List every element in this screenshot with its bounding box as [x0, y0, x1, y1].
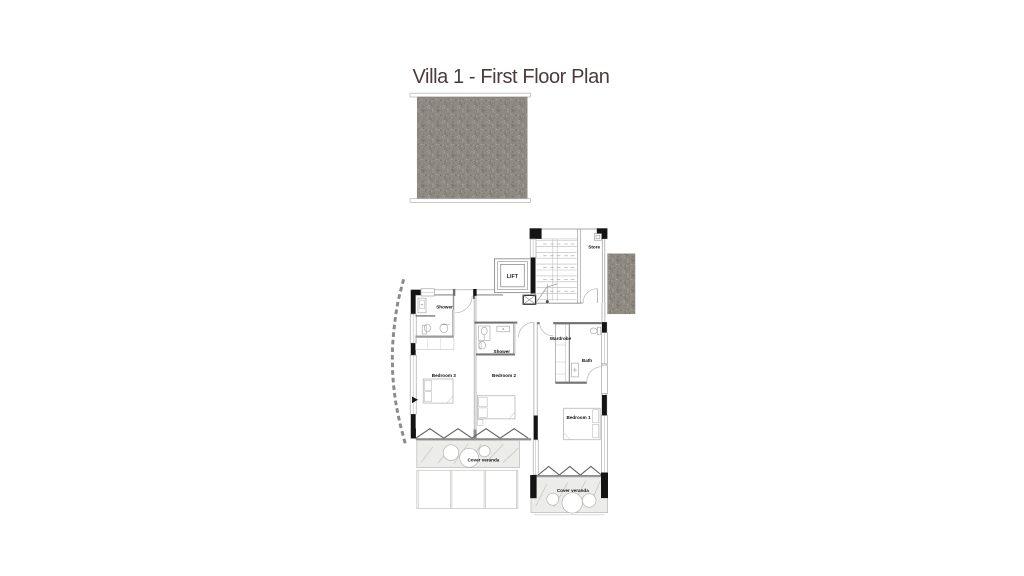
svg-text:Bath: Bath [582, 358, 592, 363]
svg-text:Store: Store [588, 245, 600, 250]
svg-text:Cover veranda: Cover veranda [557, 488, 589, 493]
svg-text:Bedroom 3: Bedroom 3 [432, 373, 456, 378]
svg-text:Shower: Shower [436, 305, 453, 310]
svg-text:Cover veranda: Cover veranda [467, 458, 499, 463]
svg-text:Villa 1 - First Floor Plan: Villa 1 - First Floor Plan [412, 66, 609, 88]
svg-text:LIFT: LIFT [507, 274, 519, 280]
svg-text:Shower: Shower [494, 349, 511, 354]
svg-text:Wardrobe: Wardrobe [550, 336, 572, 341]
svg-text:Bedroom 1: Bedroom 1 [567, 415, 591, 420]
svg-text:Bedroom 2: Bedroom 2 [492, 373, 516, 378]
